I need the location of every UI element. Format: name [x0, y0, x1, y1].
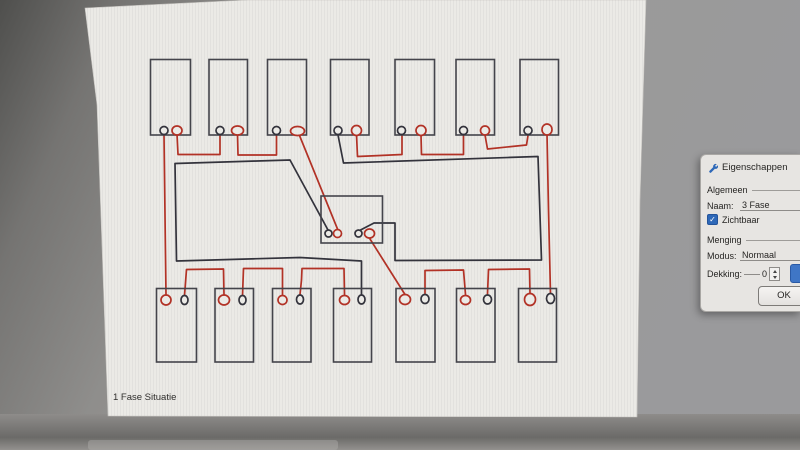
red-terminal[interactable] — [416, 126, 426, 136]
red-terminal[interactable] — [161, 295, 171, 305]
red-terminal[interactable] — [334, 230, 342, 238]
opacity-slider-handle[interactable] — [790, 264, 800, 283]
group-divider — [752, 190, 800, 191]
properties-panel: Eigenschappen Algemeen Naam: 3 Fase ✓ Zi… — [700, 154, 800, 312]
ok-button[interactable]: OK — [758, 286, 800, 306]
red-terminal[interactable] — [352, 126, 362, 136]
dekking-track[interactable] — [744, 274, 760, 275]
monitor-bottom-highlight — [88, 440, 338, 450]
red-terminal[interactable] — [219, 295, 230, 305]
group-algemeen-label: Algemeen — [707, 185, 748, 195]
red-terminal[interactable] — [172, 126, 182, 135]
black-terminal[interactable] — [460, 127, 468, 135]
red-terminal[interactable] — [461, 296, 471, 305]
red-terminal[interactable] — [278, 296, 287, 305]
naam-field[interactable]: 3 Fase — [740, 200, 800, 211]
black-terminal[interactable] — [547, 294, 555, 304]
red-terminal[interactable] — [340, 296, 350, 305]
red-terminal[interactable] — [400, 295, 411, 305]
modus-row: Modus: Normaal — [707, 250, 800, 261]
zichtbaar-row: ✓ Zichtbaar — [707, 214, 800, 225]
black-terminal[interactable] — [358, 295, 365, 304]
black-terminal[interactable] — [355, 230, 362, 237]
black-terminal[interactable] — [181, 296, 188, 305]
modus-select[interactable]: Normaal — [740, 250, 800, 261]
panel-title: Eigenschappen — [722, 162, 788, 173]
red-terminal[interactable] — [542, 124, 552, 135]
naam-label: Naam: — [707, 201, 740, 211]
dekking-value[interactable]: 0 — [762, 269, 767, 279]
red-terminal[interactable] — [481, 126, 490, 135]
black-terminal[interactable] — [524, 127, 532, 135]
spinner-down-icon[interactable] — [773, 276, 777, 279]
dekking-label: Dekking: — [707, 269, 742, 279]
diagram-caption: 1 Fase Situatie — [113, 392, 176, 403]
group-menging-label: Menging — [707, 235, 742, 245]
modus-label: Modus: — [707, 251, 740, 261]
black-terminal[interactable] — [216, 127, 224, 135]
red-terminal[interactable] — [291, 127, 305, 136]
red-terminal[interactable] — [232, 126, 244, 135]
black-terminal[interactable] — [334, 127, 342, 135]
group-menging: Menging — [707, 235, 800, 245]
screen-texture — [85, 0, 646, 417]
group-divider — [746, 240, 800, 241]
spinner-up-icon[interactable] — [773, 270, 777, 273]
wrench-icon — [708, 163, 718, 173]
black-terminal[interactable] — [273, 127, 281, 135]
black-terminal[interactable] — [325, 230, 332, 237]
black-terminal[interactable] — [421, 295, 429, 304]
black-terminal[interactable] — [160, 127, 168, 135]
zichtbaar-checkbox[interactable]: ✓ — [707, 214, 718, 225]
dekking-spinner[interactable] — [769, 267, 780, 281]
black-terminal[interactable] — [239, 296, 246, 305]
black-terminal[interactable] — [398, 127, 406, 135]
black-terminal[interactable] — [484, 295, 492, 304]
group-algemeen: Algemeen — [707, 185, 800, 195]
red-terminal[interactable] — [365, 229, 375, 238]
zichtbaar-label: Zichtbaar — [722, 215, 760, 225]
dekking-row: Dekking: 0 — [707, 267, 800, 281]
screen-photo: 1 Fase Situatie — [0, 0, 800, 450]
red-terminal[interactable] — [525, 294, 536, 306]
naam-row: Naam: 3 Fase — [707, 200, 800, 211]
panel-title-row: Eigenschappen — [708, 162, 788, 173]
black-terminal[interactable] — [297, 295, 304, 304]
